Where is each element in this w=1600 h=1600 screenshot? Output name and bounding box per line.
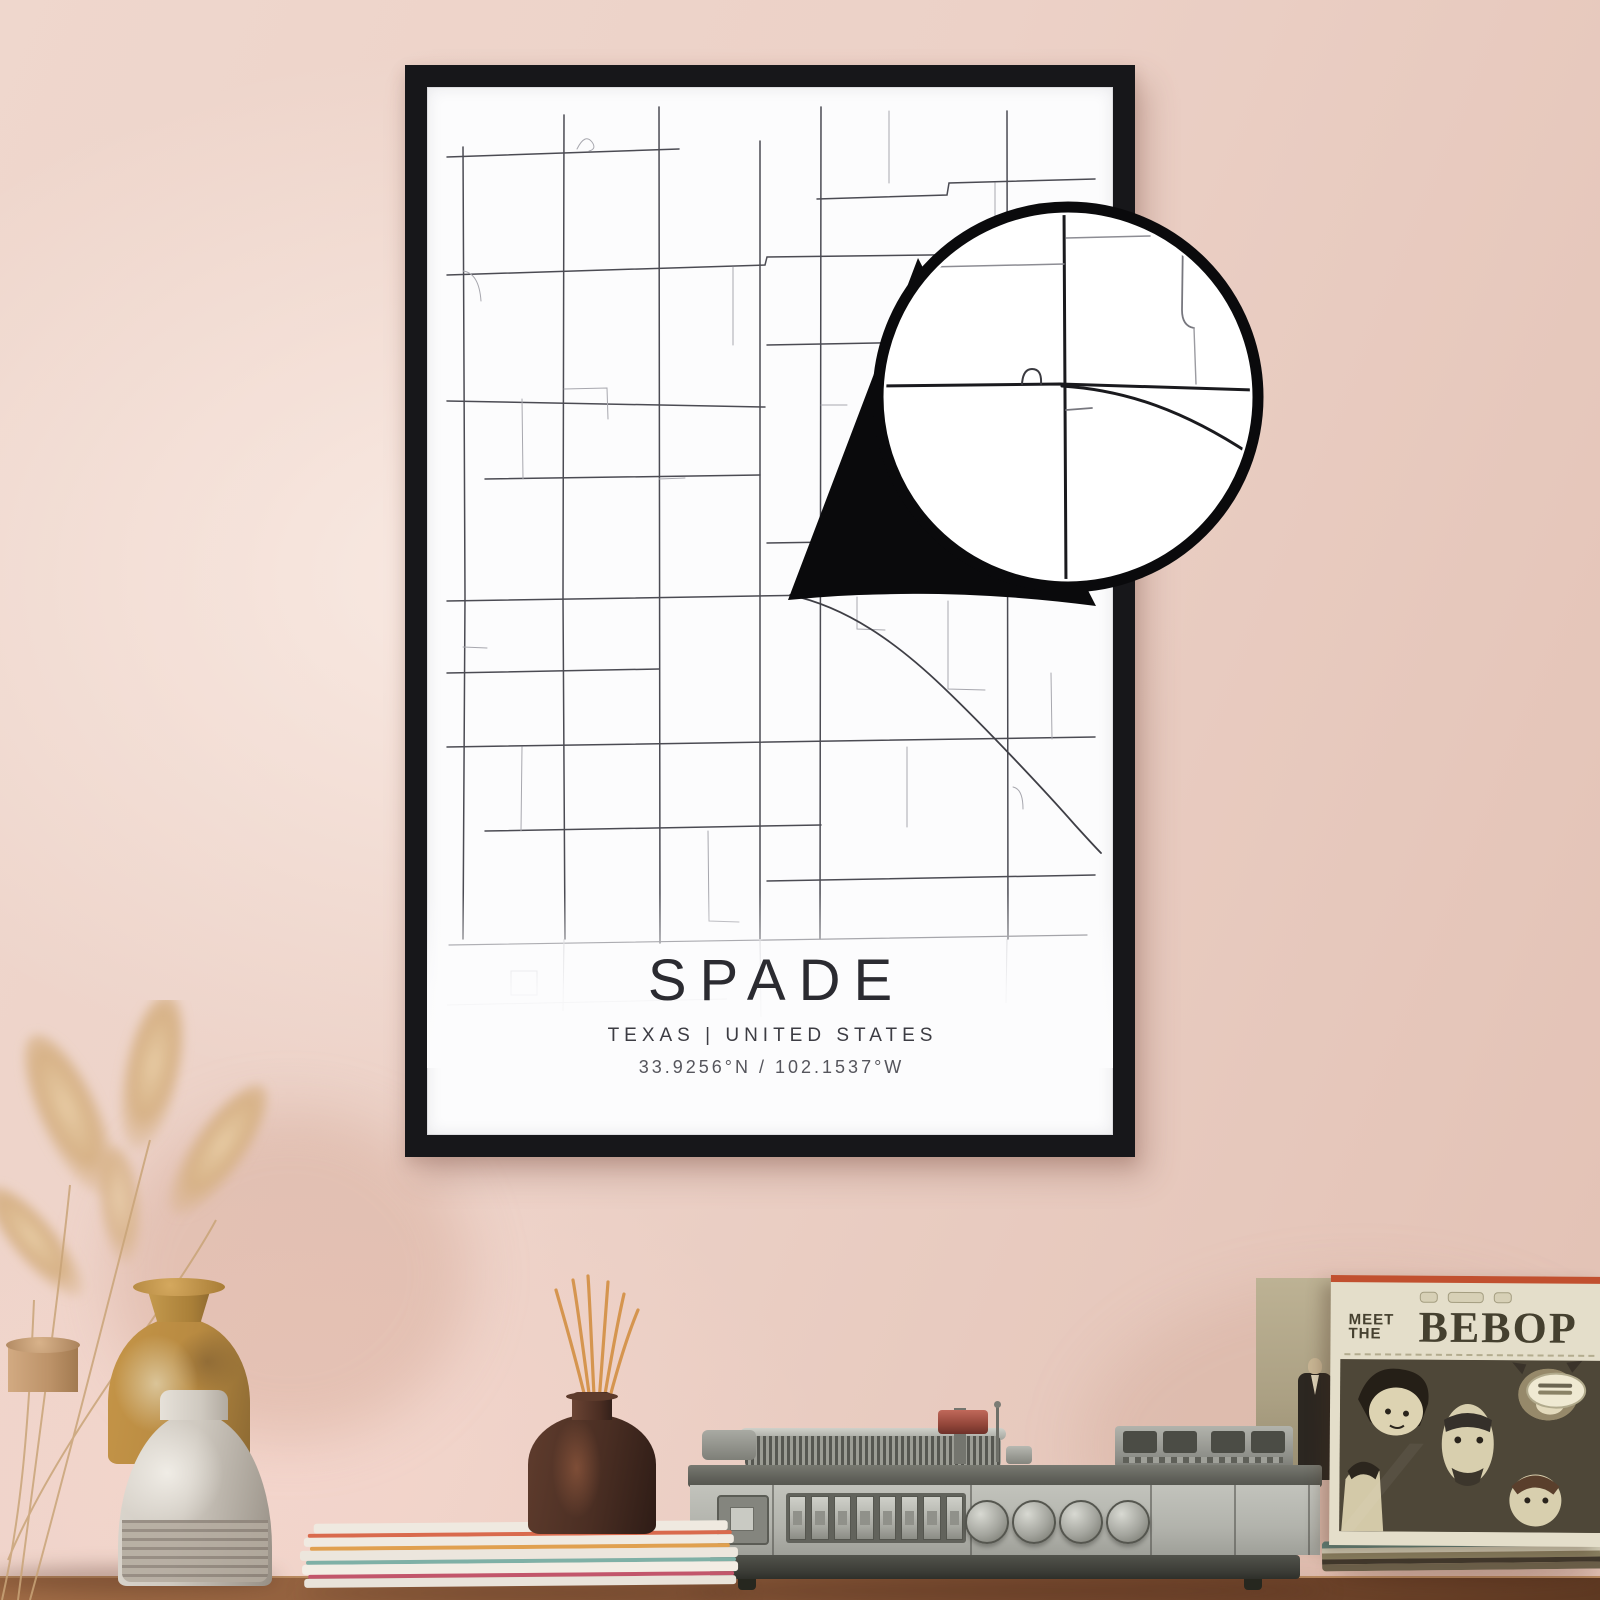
panel-seam xyxy=(772,1485,774,1555)
magnifier-callout xyxy=(700,170,1320,630)
panel-seam xyxy=(1308,1485,1310,1555)
tan-vase-rim xyxy=(6,1337,80,1353)
turntable xyxy=(688,1398,1322,1594)
tan-vase-body xyxy=(0,1385,118,1585)
reed-diffuser-bottle xyxy=(528,1392,656,1534)
pampas-plumes xyxy=(0,1000,284,1310)
room-scene: SPADE TEXAS | UNITED STATES 33.9256°N / … xyxy=(0,0,1600,1600)
preset-button xyxy=(789,1496,806,1540)
diffuser-body xyxy=(528,1414,656,1534)
diffuser-lip xyxy=(566,1392,618,1401)
console-key xyxy=(1123,1431,1157,1453)
turntable-base xyxy=(710,1555,1300,1579)
poster-coordinates: 33.9256°N / 102.1537°W xyxy=(427,1057,1113,1078)
sleeve-top-edge xyxy=(1331,1275,1600,1284)
panel-seam xyxy=(1234,1485,1236,1555)
turntable-foot xyxy=(1244,1579,1262,1590)
deck-mini-knob xyxy=(1006,1446,1032,1464)
tuning-knob xyxy=(1106,1500,1150,1544)
amber-vase-rim xyxy=(133,1278,225,1296)
record-sleeve-bebop: MEET THE BEBOP xyxy=(1329,1275,1600,1547)
man-head xyxy=(1308,1358,1322,1374)
control-console xyxy=(1115,1426,1293,1468)
turntable-top-trim xyxy=(688,1465,1322,1487)
console-vents xyxy=(1123,1457,1283,1463)
volume-knob xyxy=(965,1500,1009,1544)
sleeve-divider xyxy=(1344,1353,1594,1357)
sleeve-title-row: MEET THE BEBOP xyxy=(1344,1307,1600,1353)
ribbed-stone-vase xyxy=(118,1390,272,1586)
turntable-foot xyxy=(738,1579,756,1590)
treble-knob xyxy=(1059,1500,1103,1544)
tonearm-headshell xyxy=(938,1410,988,1434)
magnifier-lens xyxy=(878,207,1258,587)
tonearm-counterweight-rod xyxy=(996,1406,999,1462)
poster-text-block: SPADE TEXAS | UNITED STATES 33.9256°N / … xyxy=(427,951,1113,1078)
oval-label-badge xyxy=(1526,1372,1586,1408)
sleeve-title-main: BEBOP xyxy=(1418,1302,1578,1354)
sleeve-title-the: THE xyxy=(1348,1327,1394,1342)
panel-seam xyxy=(1150,1485,1152,1555)
preset-button xyxy=(879,1496,896,1540)
highway-road xyxy=(790,595,1101,853)
preset-button-row xyxy=(786,1493,966,1543)
bass-knob xyxy=(1012,1500,1056,1544)
sleeve-title-small: MEET THE xyxy=(1348,1313,1394,1342)
lid-hinge xyxy=(702,1430,756,1460)
poster-subtitle: TEXAS | UNITED STATES xyxy=(427,1025,1113,1047)
sleeve-logos xyxy=(1371,1291,1561,1302)
stone-vase-ribs xyxy=(122,1520,268,1582)
magazine-stack xyxy=(300,1520,741,1596)
preset-button xyxy=(811,1496,828,1540)
console-key xyxy=(1163,1431,1197,1453)
console-key xyxy=(1211,1431,1245,1453)
tan-vase xyxy=(0,1337,118,1585)
preset-button xyxy=(834,1496,851,1540)
console-key xyxy=(1251,1431,1285,1453)
preset-button xyxy=(923,1496,940,1540)
preset-button xyxy=(856,1496,873,1540)
preset-button xyxy=(901,1496,918,1540)
preset-button xyxy=(946,1496,963,1540)
poster-title: SPADE xyxy=(427,951,1113,1012)
stone-vase-neck xyxy=(160,1390,228,1420)
